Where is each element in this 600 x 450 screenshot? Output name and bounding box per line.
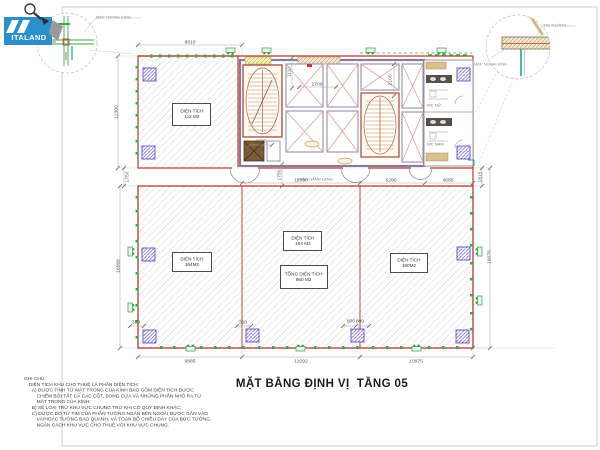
callout-label-wall-axis: TIM TƯỜNG — [543, 23, 566, 28]
notes-line: VÀ/HOẶC TƯỜNG BAO QUANH, VÀ TOÀN BỘ CHIỀ… — [37, 416, 228, 422]
area-value: 190M2 — [397, 263, 420, 269]
building-core — [240, 57, 424, 166]
dim-band-3: 4685 — [442, 177, 453, 183]
area-caption: DIỆN TÍCH — [180, 256, 203, 262]
dim-bottom-1: 9885 — [184, 358, 195, 364]
door-leaf-symbol — [305, 141, 319, 147]
dim-left-upper: 11380 — [113, 105, 119, 118]
wc-bench — [426, 153, 448, 161]
wc-female-label: WC NỮ — [427, 103, 441, 108]
wc-male-label: WC NAM — [427, 142, 444, 147]
floor-plan-drawing: ITALAND MÉP TRONG KÍNH TIM TƯỜNG MÉP NGO… — [0, 0, 600, 450]
callout-label-outer-glass: MÉP NGOÀI KÍNH — [474, 62, 507, 67]
dim-left-lower: 16568 — [115, 259, 121, 273]
drawing-title: MẶT BẰNG ĐỊNH VỊ TẦNG 05 — [236, 378, 408, 390]
dim-bottom-2: 11092 — [294, 358, 307, 364]
dim-core-w2: 1500 — [255, 138, 266, 144]
area-box-room-se: DIỆN TÍCH190M2 — [390, 253, 428, 273]
door-leaf-symbol — [338, 158, 352, 164]
dim-bottom-3: 10975 — [409, 358, 423, 364]
area-box-total: TỔNG DIỆN TÍCH660 M2 — [280, 265, 328, 289]
dim-col-offset-3b: 800 — [356, 318, 364, 324]
dim-core-h1: 2100 — [387, 74, 393, 85]
service-shaft — [244, 141, 280, 161]
area-value: 660 M2 — [285, 277, 323, 283]
shade-strip — [245, 57, 271, 64]
area-box-room-sw: DIỆN TÍCH164M2 — [172, 252, 212, 272]
dim-core-w1: 2700 — [311, 81, 322, 87]
area-caption: TỔNG DIỆN TÍCH — [285, 271, 323, 277]
shade-strip — [298, 57, 340, 64]
elevator-bank — [286, 64, 423, 162]
dim-col-offset-1: 350 — [132, 319, 140, 325]
dim-core-band: 1750 — [276, 169, 282, 180]
stairwell-right — [361, 93, 399, 157]
area-value: 164M2 — [180, 262, 203, 268]
wc-counter — [426, 75, 452, 83]
stairwell-left — [243, 65, 282, 137]
area-box-room-nw: DIỆN TÍCH112 M2 — [172, 103, 211, 126]
wc-bench — [426, 62, 446, 69]
dim-band-2: 6290 — [385, 177, 396, 183]
notes-line: NGĂN CÁCH KHU VỰC CHO THUÊ VỚI KHU VỰC C… — [37, 422, 228, 428]
area-box-room-sc: DIỆN TÍCH194 M2 — [283, 231, 322, 251]
dim-col-offset-3a: 800 — [347, 318, 355, 324]
dim-col-offset-2: 350 — [239, 319, 247, 325]
area-caption: DIỆN TÍCH — [397, 257, 420, 263]
notes-block: GHI CHÚ: DIỆN TÍCH KHU CHO THUÊ LÀ PHẦN … — [24, 376, 228, 428]
area-value: 194 M2 — [291, 241, 314, 247]
brand-name: ITALAND — [6, 33, 52, 42]
dim-top-width: 9810 — [184, 39, 195, 45]
dim-right-band: 1815 — [477, 171, 483, 182]
detail-callout-right — [476, 14, 575, 166]
area-value: 112 M2 — [180, 115, 203, 121]
area-caption: DIỆN TÍCH — [291, 235, 314, 241]
wc-counter — [426, 118, 452, 126]
dim-right-lower: 18075 — [486, 250, 492, 264]
dim-core-h2: 1110 — [286, 67, 292, 77]
dim-left-band: 1750 — [124, 171, 130, 182]
dim-band-1: 11090 — [294, 177, 307, 183]
callout-label-inner-glass: MÉP TRONG KÍNH — [96, 15, 131, 20]
